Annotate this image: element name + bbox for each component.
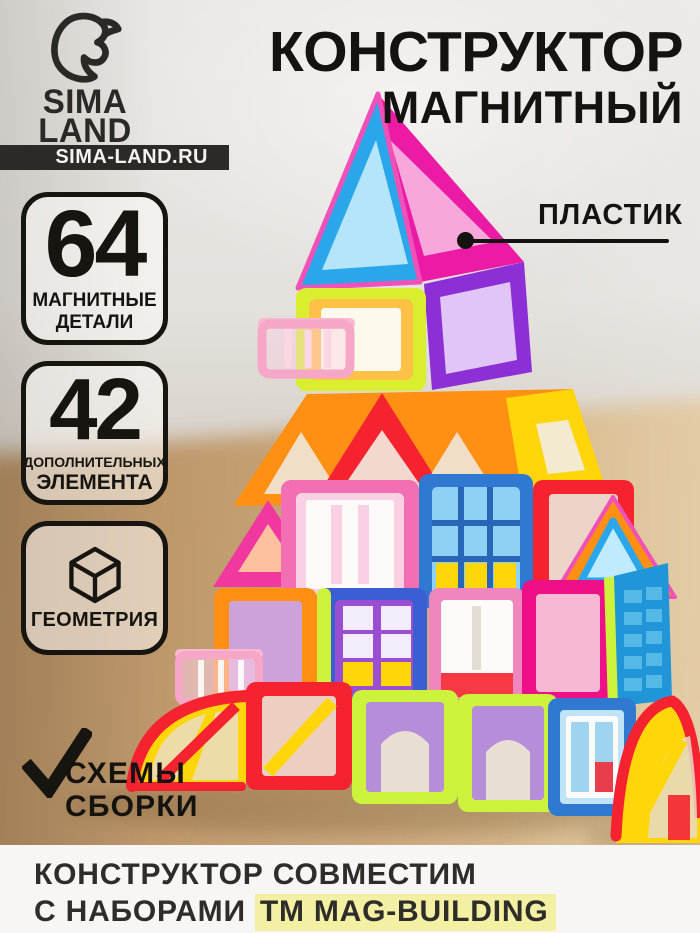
footer-brand-highlight: ТМ MAG-BUILDING bbox=[255, 894, 557, 931]
badge-label: МАГНИТНЫЕ ДЕТАЛИ bbox=[32, 290, 156, 334]
cube-icon bbox=[64, 544, 126, 606]
brand-logo: SIMA LAND bbox=[26, 10, 144, 146]
simaland-bird-icon bbox=[42, 10, 128, 88]
badge-geometry: ГЕОМЕТРИЯ bbox=[21, 521, 168, 655]
compatibility-footer: КОНСТРУКТОР СОВМЕСТИМ С НАБОРАМИТМ MAG-B… bbox=[0, 845, 700, 933]
badge-extra-elements: 42 ДОПОЛНИТЕЛЬНЫХ ЭЛЕМЕНТА bbox=[21, 361, 168, 505]
footer-line2-prefix: С НАБОРАМИ bbox=[34, 895, 246, 928]
feature-line2: СБОРКИ bbox=[65, 790, 199, 823]
product-title: КОНСТРУКТОР МАГНИТНЫЙ bbox=[269, 24, 683, 130]
badge-magnetic-parts: 64 МАГНИТНЫЕ ДЕТАЛИ bbox=[21, 192, 168, 345]
title-main: КОНСТРУКТОР bbox=[269, 24, 683, 81]
badge-value: 64 bbox=[45, 203, 145, 287]
feature-text: СХЕМЫ СБОРКИ bbox=[65, 757, 199, 823]
feature-line1: СХЕМЫ bbox=[65, 757, 199, 790]
website-bar: SIMA-LAND.RU bbox=[0, 145, 229, 170]
callout-line bbox=[462, 239, 669, 243]
brand-name-land: LAND bbox=[28, 117, 142, 146]
footer-line2: С НАБОРАМИТМ MAG-BUILDING bbox=[34, 893, 700, 930]
badge-value: 42 bbox=[49, 372, 140, 449]
balcony bbox=[258, 318, 355, 374]
material-label: ПЛАСТИК bbox=[462, 199, 669, 232]
feature-schemes: СХЕМЫ СБОРКИ bbox=[20, 724, 230, 840]
material-callout: ПЛАСТИК bbox=[462, 199, 669, 243]
badge-label-line1: ДОПОЛНИТЕЛЬНЫХ bbox=[23, 454, 165, 471]
footer-line1: КОНСТРУКТОР СОВМЕСТИМ bbox=[34, 856, 700, 893]
title-sub: МАГНИТНЫЙ bbox=[269, 85, 683, 130]
badge-label-line2: ДЕТАЛИ bbox=[32, 312, 156, 334]
product-card: SIMA LAND SIMA-LAND.RU КОНСТРУКТОР МАГНИ… bbox=[0, 0, 700, 933]
badge-label-line2: ЭЛЕМЕНТА bbox=[36, 471, 152, 494]
badge-label: ГЕОМЕТРИЯ bbox=[31, 609, 158, 632]
badge-label-line1: МАГНИТНЫЕ bbox=[32, 290, 156, 312]
dot-icon bbox=[457, 232, 474, 249]
